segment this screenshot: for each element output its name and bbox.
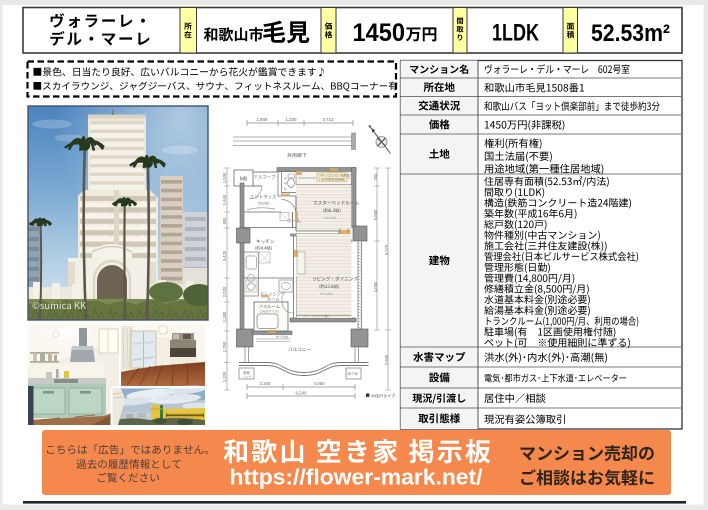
svg-text:5,270: 5,270 bbox=[384, 244, 389, 255]
svg-text:MB: MB bbox=[240, 177, 248, 183]
svg-text:1,280: 1,280 bbox=[222, 311, 227, 322]
svg-text:1LDK: 1LDK bbox=[492, 20, 540, 47]
svg-text:3,713: 3,713 bbox=[323, 117, 335, 122]
svg-text:2,020: 2,020 bbox=[222, 286, 227, 297]
svg-text:4,060: 4,060 bbox=[314, 381, 326, 386]
svg-text:6,240: 6,240 bbox=[296, 391, 308, 396]
svg-text:1,200: 1,200 bbox=[222, 371, 227, 382]
svg-text:700: 700 bbox=[373, 173, 378, 181]
svg-text:1450: 1450 bbox=[353, 19, 406, 47]
svg-text:1,750: 1,750 bbox=[222, 341, 227, 352]
svg-text:1,000: 1,000 bbox=[222, 172, 227, 183]
svg-text:1,640: 1,640 bbox=[222, 194, 227, 205]
svg-text:2,600: 2,600 bbox=[384, 354, 389, 365]
svg-text:1,200: 1,200 bbox=[286, 117, 298, 122]
svg-text:1,808: 1,808 bbox=[257, 117, 269, 122]
svg-text:4,050: 4,050 bbox=[373, 281, 378, 292]
svg-text:https://flower-mark.net/: https://flower-mark.net/ bbox=[230, 465, 483, 490]
svg-text:3,420: 3,420 bbox=[222, 250, 227, 261]
svg-text:52.53m²: 52.53m² bbox=[591, 20, 670, 47]
svg-text:2,340: 2,340 bbox=[260, 381, 272, 386]
svg-text:5,680: 5,680 bbox=[373, 209, 378, 220]
svg-text:900: 900 bbox=[222, 217, 227, 225]
